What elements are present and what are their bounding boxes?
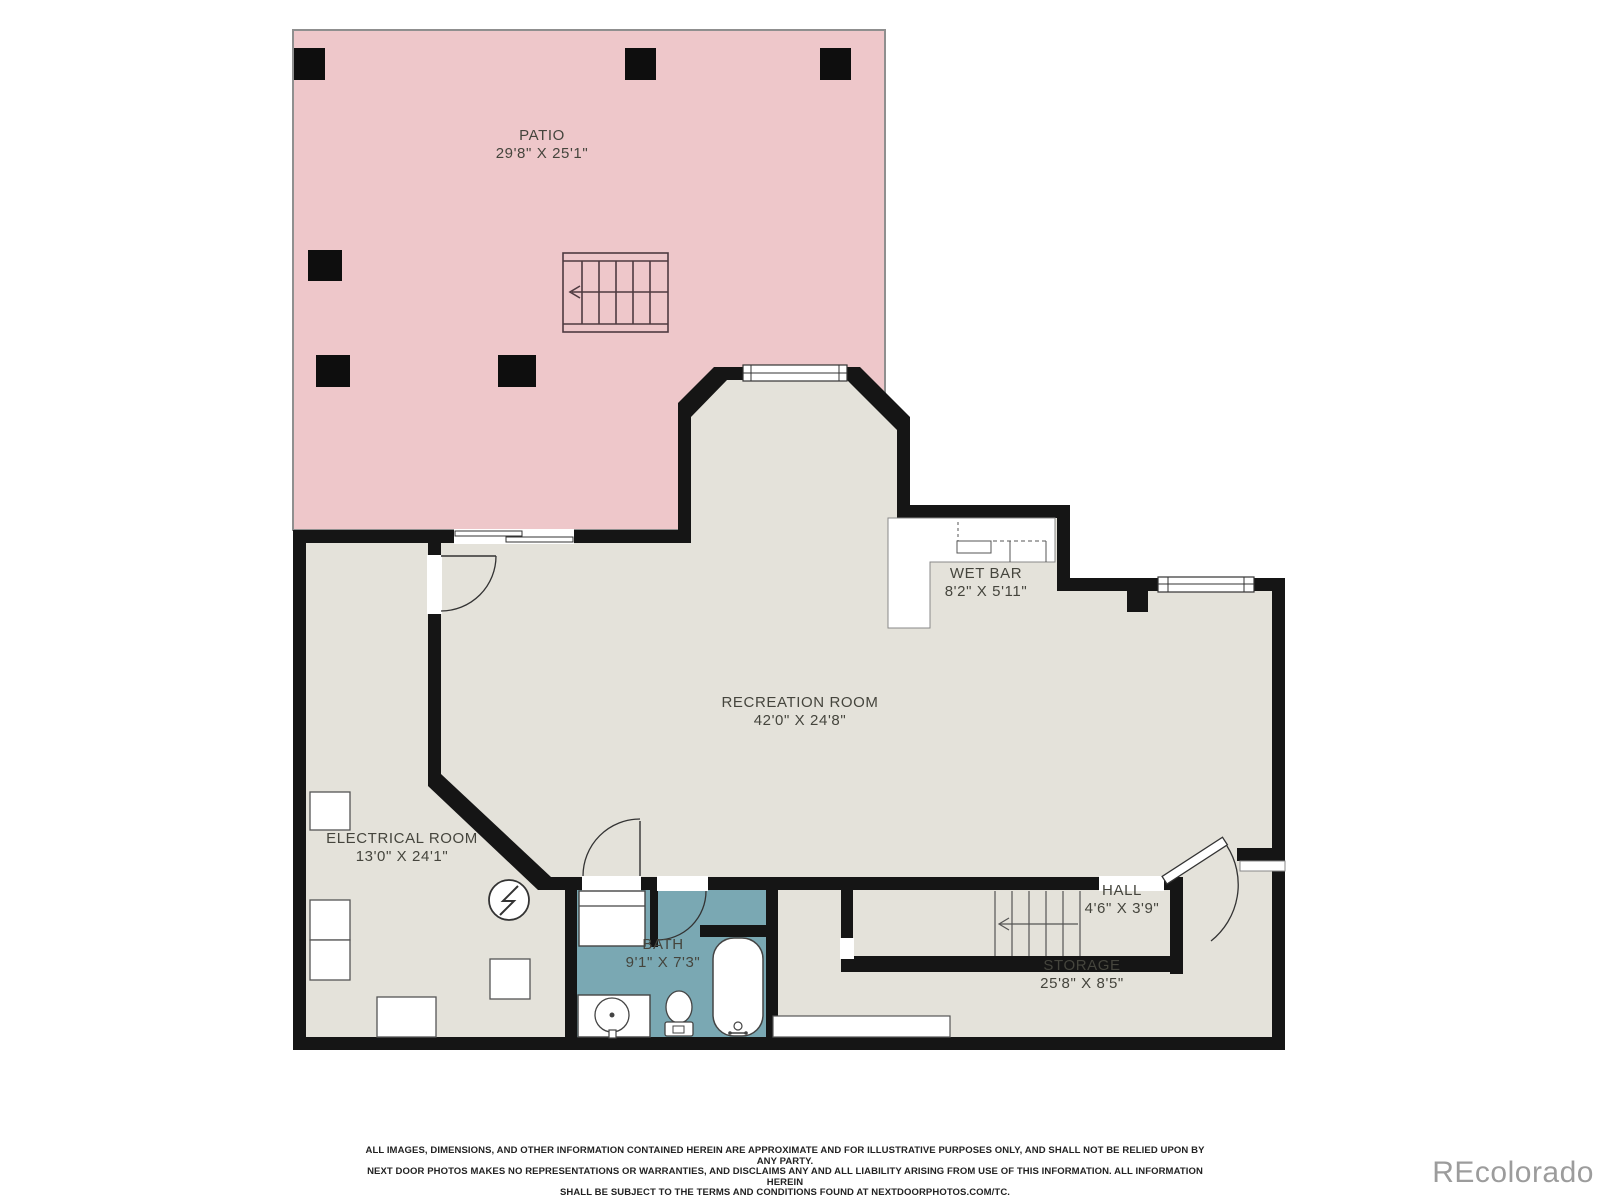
east-window [1158, 577, 1254, 592]
room-label-storage: STORAGE 25'8" X 8'5" [1040, 957, 1124, 993]
wall-segment [538, 877, 584, 890]
wall-tub-niche [700, 925, 766, 937]
bath-sink [578, 995, 650, 1038]
patio-post [308, 250, 342, 281]
floorplan-page: PATIO 29'8" X 25'1" WET BAR 8'2" X 5'11"… [0, 0, 1600, 1200]
patio-post [294, 48, 325, 80]
utility-box [377, 997, 436, 1037]
room-label-hall: HALL 4'6" X 3'9" [1085, 882, 1160, 918]
room-label-electrical-room: ELECTRICAL ROOM 13'0" X 24'1" [326, 830, 478, 866]
wall-closet [1237, 848, 1285, 861]
room-label-wet-bar: WET BAR 8'2" X 5'11" [945, 565, 1028, 601]
wall-storage-north [707, 877, 1100, 890]
patio-post [316, 355, 350, 387]
wall-bath-east [766, 890, 778, 1037]
room-label-recreation-room: RECREATION ROOM 42'0" X 24'8" [721, 694, 878, 730]
wall-segment [640, 877, 658, 890]
disclaimer-text: ALL IMAGES, DIMENSIONS, AND OTHER INFORM… [355, 1146, 1215, 1199]
closet-shelf [1240, 861, 1285, 871]
wall-pillar [1127, 591, 1148, 612]
bay-window [743, 365, 847, 381]
utility-box [310, 900, 350, 940]
utility-box [310, 792, 350, 830]
toilet [665, 991, 693, 1036]
electrical-panel-symbol [489, 880, 529, 920]
utility-box [310, 940, 350, 980]
wall-stairs-south [841, 956, 1178, 972]
watermark-recolorado: REcolorado [1432, 1156, 1594, 1190]
patio-post [820, 48, 851, 80]
room-label-bath: BATH 9'1" X 7'3" [626, 936, 701, 972]
patio-post [625, 48, 656, 80]
patio-post [498, 355, 536, 387]
wall-bath-west [565, 890, 577, 1037]
bathtub [713, 938, 763, 1036]
storage-crawlspace-access [773, 1016, 950, 1037]
storage-opening [840, 938, 854, 959]
room-label-patio: PATIO 29'8" X 25'1" [496, 127, 589, 163]
sliding-door [454, 529, 574, 544]
wet-bar-sink [957, 541, 991, 553]
wall-stairs-west [841, 890, 853, 940]
floorplan-drawing [0, 0, 1600, 1200]
utility-box [490, 959, 530, 999]
